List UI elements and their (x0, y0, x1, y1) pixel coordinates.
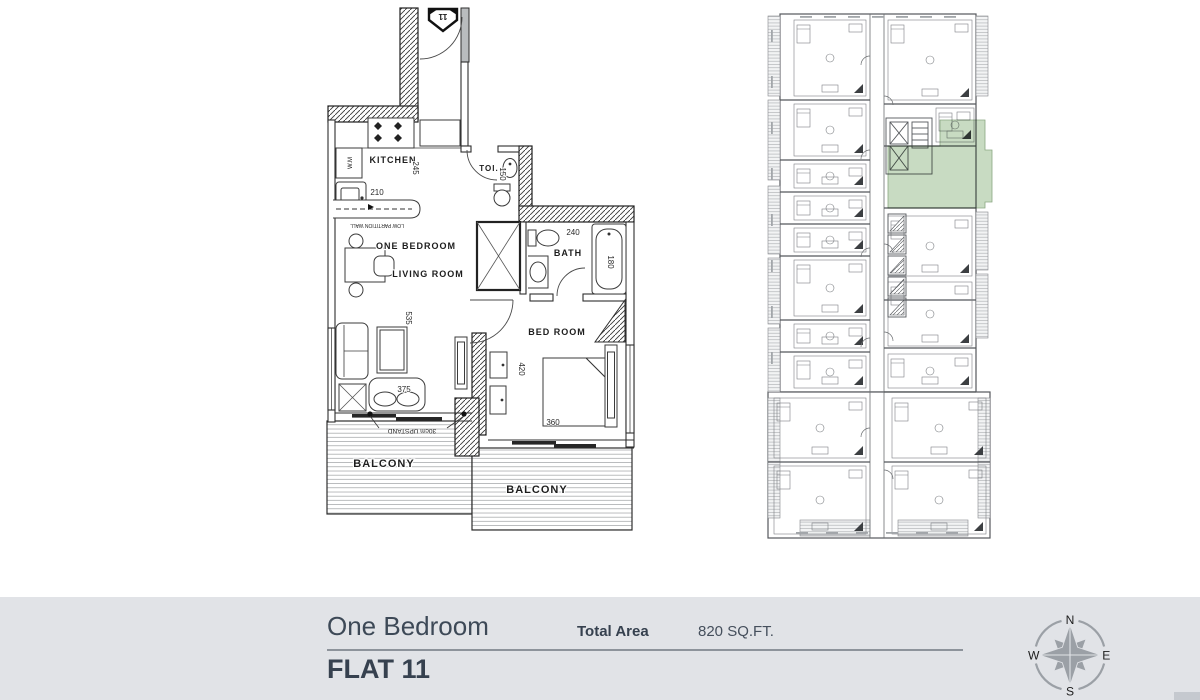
bedroom-furniture (490, 300, 625, 427)
bedroom-depth-dim: 420 (517, 362, 526, 376)
living-sliding-door (335, 413, 472, 421)
bedroom-sliding-door (488, 440, 634, 448)
footer-bar: One Bedroom FLAT 11 Total Area 820 SQ.FT… (0, 597, 1200, 700)
sofa-icon (336, 323, 368, 379)
bed-icon (543, 345, 617, 427)
footer-divider (327, 649, 963, 651)
compass-south-label: S (1066, 685, 1074, 699)
bathtub-dim: 180 (606, 255, 615, 269)
low-partition-label: LOW PARTITION WALL (350, 222, 404, 228)
column-hatch (595, 300, 625, 342)
corner-accent (1174, 692, 1200, 700)
sofa-dim: 375 (397, 385, 411, 394)
one-bedroom-label: ONE BEDROOM (376, 241, 456, 251)
low-partition-counter (333, 200, 420, 218)
tv-unit-icon (455, 337, 467, 389)
bedroom-window (626, 345, 634, 433)
kitchen-depth-dim: 245 (411, 161, 420, 175)
toilet-wc-icon (494, 184, 510, 206)
key-plan (765, 5, 995, 550)
entry-marker-number: 11 (438, 12, 447, 22)
bath-label: BATH (554, 248, 582, 258)
loveseat-icon (369, 378, 425, 411)
compass-rose-icon: N E S W (1026, 611, 1114, 699)
side-table-icon (339, 384, 366, 411)
fridge-icon (420, 120, 460, 146)
total-area-label: Total Area (577, 623, 649, 640)
living-room-label: LIVING ROOM (392, 269, 464, 279)
kitchen-label: KITCHEN (370, 155, 417, 165)
flat-number-label: FLAT 11 (327, 654, 430, 685)
balcony-right-label: BALCONY (506, 484, 567, 496)
toilet-label: TOI. (479, 164, 498, 173)
unit-floor-plan: 11 W.M (320, 0, 650, 560)
living-window (328, 328, 335, 410)
kitchen-fixtures: W.M (333, 118, 461, 218)
unit-type-label: One Bedroom (327, 611, 489, 642)
coffee-table-icon (377, 327, 407, 373)
bath-basin-icon (528, 256, 548, 288)
compass-east-label: E (1102, 648, 1110, 662)
bed-width-dim: 360 (546, 418, 560, 427)
entry-flat-marker: 11 (429, 9, 457, 31)
upstand-label: 30cm UPSTAND (388, 427, 437, 434)
stove-icon (368, 118, 414, 148)
bath-width-dim: 240 (566, 228, 580, 237)
bath-fixtures (477, 222, 626, 294)
shower-box-icon (477, 222, 520, 290)
total-area-value: 820 SQ.FT. (698, 623, 774, 640)
floor-plan-page: 11 W.M (0, 0, 1200, 700)
balcony-left-label: BALCONY (353, 458, 414, 470)
washing-machine-icon: W.M (336, 148, 362, 178)
compass-west-label: W (1028, 648, 1040, 662)
bedroom-desk-icon (490, 352, 507, 414)
bed-room-label: BED ROOM (528, 327, 586, 337)
washing-machine-label: W.M (348, 157, 354, 169)
compass-north-label: N (1066, 613, 1075, 627)
bath-door-arc (557, 268, 585, 296)
kitchen-width-dim: 210 (370, 188, 384, 197)
toilet-depth-dim: 150 (498, 167, 507, 181)
bath-wc-icon (528, 230, 559, 246)
living-depth-dim: 535 (404, 311, 413, 325)
